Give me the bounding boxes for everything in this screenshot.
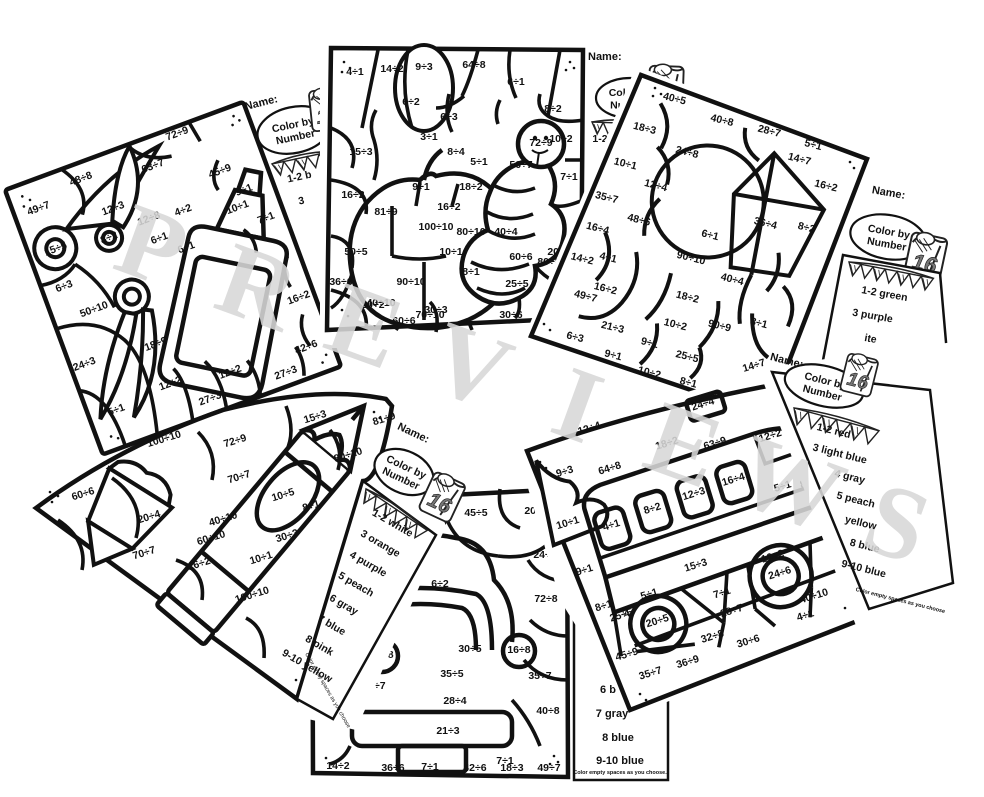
svg-text:60÷6: 60÷6 [509,251,532,263]
svg-text:30÷5: 30÷5 [458,643,481,655]
svg-text:15÷3: 15÷3 [349,146,372,158]
svg-text:14÷2: 14÷2 [380,63,403,75]
svg-text:81÷9: 81÷9 [374,206,397,218]
svg-text:8÷1: 8÷1 [462,266,480,278]
svg-text:72÷9: 72÷9 [529,137,552,149]
svg-text:3÷1: 3÷1 [420,131,438,143]
svg-text:ite: ite [863,332,877,346]
svg-text:56÷7: 56÷7 [509,159,532,171]
svg-text:25÷5: 25÷5 [505,278,528,290]
svg-text:70÷10: 70÷10 [415,309,444,321]
svg-text:14÷2: 14÷2 [326,760,349,772]
svg-text:28÷4: 28÷4 [443,695,466,707]
svg-text:Name:: Name: [588,51,622,63]
svg-text:40÷8: 40÷8 [536,705,559,717]
svg-text:9÷1: 9÷1 [412,181,430,193]
svg-text:16÷2: 16÷2 [341,189,364,201]
svg-text:7÷1: 7÷1 [560,171,578,183]
svg-text:5÷1: 5÷1 [470,156,488,168]
svg-text:18÷2: 18÷2 [459,181,482,193]
svg-text:40÷4: 40÷4 [494,226,517,238]
svg-text:72÷8: 72÷8 [534,593,557,605]
svg-text:21÷3: 21÷3 [436,725,459,737]
svg-text:9-10 blue: 9-10 blue [596,755,644,767]
svg-text:16÷8: 16÷8 [507,644,530,656]
svg-text:35÷5: 35÷5 [440,668,463,680]
svg-text:7 gray: 7 gray [596,708,629,720]
svg-text:4÷1: 4÷1 [346,66,364,78]
svg-text:42÷6: 42÷6 [463,762,486,774]
svg-text:6÷2: 6÷2 [402,96,420,108]
svg-text:10÷2: 10÷2 [549,133,572,145]
svg-text:45÷5: 45÷5 [464,507,487,519]
svg-text:50÷5: 50÷5 [344,246,367,258]
svg-text:64÷8: 64÷8 [462,59,485,71]
svg-text:10÷1: 10÷1 [439,246,462,258]
svg-text:8÷2: 8÷2 [544,103,562,115]
svg-text:100÷10: 100÷10 [419,221,454,233]
svg-text:36÷6: 36÷6 [381,762,404,774]
svg-text:16÷2: 16÷2 [437,201,460,213]
svg-text:7÷1: 7÷1 [496,755,514,767]
svg-text:6÷2: 6÷2 [431,578,449,590]
svg-text:6÷3: 6÷3 [440,111,458,123]
svg-text:8 blue: 8 blue [602,732,634,744]
svg-text:8÷4: 8÷4 [447,146,465,158]
svg-text:9÷3: 9÷3 [415,61,433,73]
svg-text:80÷10: 80÷10 [456,226,485,238]
svg-text:49÷7: 49÷7 [537,762,560,774]
svg-text:Color empty spaces as you choo: Color empty spaces as you choose. [573,770,667,776]
svg-text:35÷7: 35÷7 [528,670,551,682]
svg-text:6÷1: 6÷1 [507,76,525,88]
svg-text:7÷1: 7÷1 [421,761,439,773]
